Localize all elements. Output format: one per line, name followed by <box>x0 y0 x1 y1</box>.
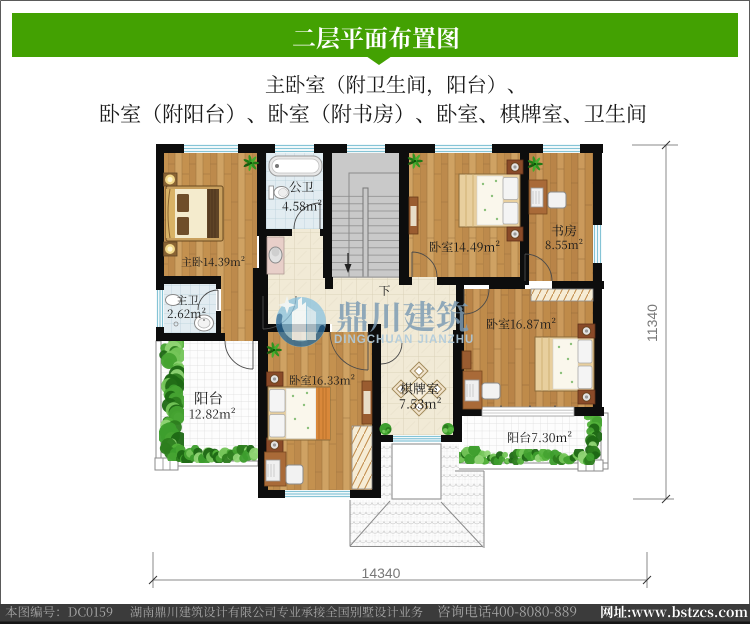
svg-text:DINGCHUAN JIANZHU: DINGCHUAN JIANZHU <box>334 334 474 346</box>
svg-text:11340: 11340 <box>644 304 660 342</box>
svg-text:14340: 14340 <box>362 565 401 581</box>
